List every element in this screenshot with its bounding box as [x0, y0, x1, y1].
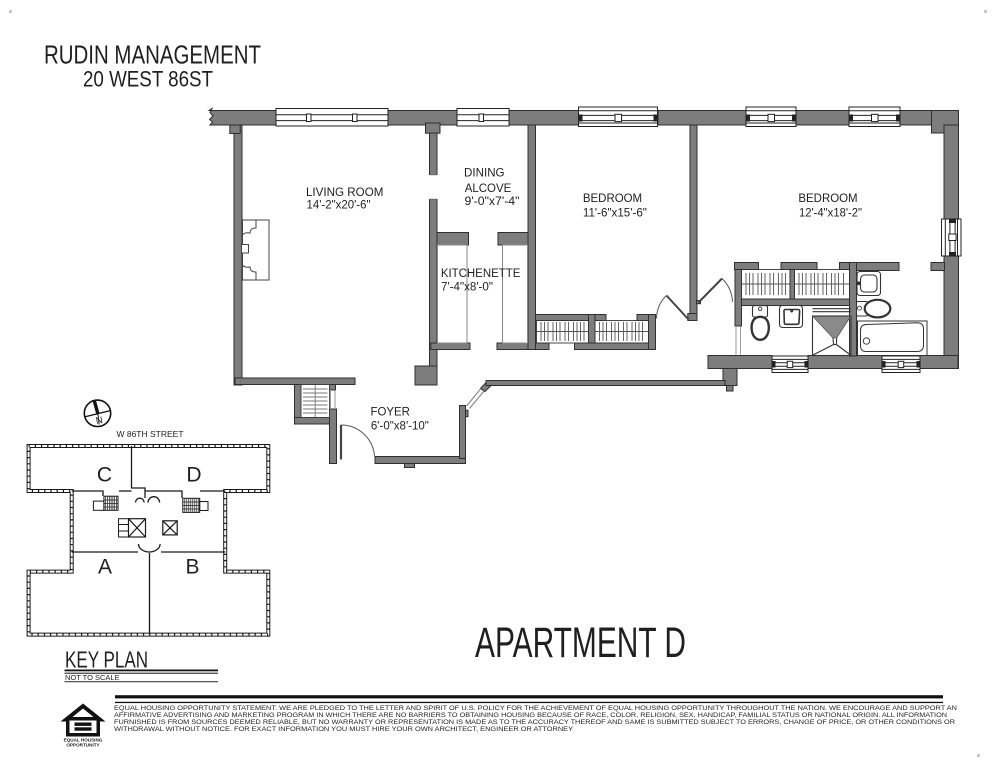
svg-text:N: N	[95, 415, 104, 427]
svg-text:NOT TO SCALE: NOT TO SCALE	[65, 673, 120, 682]
svg-text:12'-4"x18'-2": 12'-4"x18'-2"	[799, 206, 862, 220]
svg-text:14'-2"x20'-6": 14'-2"x20'-6"	[307, 197, 371, 211]
svg-text:9'-0"x7'-4": 9'-0"x7'-4"	[465, 194, 520, 208]
svg-text:EQUAL HOUSING OPPORTUNITY STAT: EQUAL HOUSING OPPORTUNITY STATEMENT: WE …	[114, 705, 957, 712]
svg-text:KEY PLAN: KEY PLAN	[65, 646, 148, 672]
svg-text:W 86TH STREET: W 86TH STREET	[116, 429, 183, 439]
svg-text:AFFIRMATIVE ADVERTISING AND MA: AFFIRMATIVE ADVERTISING AND MARKETING PR…	[114, 712, 947, 719]
svg-text:6'-0"x8'-10": 6'-0"x8'-10"	[371, 418, 429, 432]
svg-text:FURNISHED IS FROM SOURCES DEEM: FURNISHED IS FROM SOURCES DEEMED RELIABL…	[114, 719, 955, 726]
svg-text:20 WEST 86ST: 20 WEST 86ST	[83, 66, 213, 91]
svg-text:ALCOVE: ALCOVE	[465, 181, 512, 195]
svg-text:APARTMENT D: APARTMENT D	[475, 619, 686, 667]
svg-text:D: D	[186, 463, 201, 486]
svg-text:B: B	[185, 555, 199, 578]
svg-text:WITHDRAWAL WITHOUT NOTICE. FO: WITHDRAWAL WITHOUT NOTICE. FOR EXACT INF…	[114, 726, 574, 733]
svg-text:RUDIN MANAGEMENT: RUDIN MANAGEMENT	[44, 39, 261, 69]
svg-text:DINING: DINING	[464, 165, 505, 179]
svg-text:BEDROOM: BEDROOM	[583, 191, 642, 205]
svg-text:A: A	[98, 555, 112, 578]
svg-text:C: C	[97, 463, 112, 486]
svg-text:BEDROOM: BEDROOM	[798, 191, 857, 205]
svg-text:7'-4"x8'-0": 7'-4"x8'-0"	[441, 279, 493, 293]
svg-text:11'-6"x15'-6": 11'-6"x15'-6"	[583, 206, 647, 220]
svg-text:KITCHENETTE: KITCHENETTE	[441, 266, 521, 280]
svg-text:OPPORTUNITY: OPPORTUNITY	[66, 742, 99, 747]
svg-text:FOYER: FOYER	[370, 404, 410, 418]
